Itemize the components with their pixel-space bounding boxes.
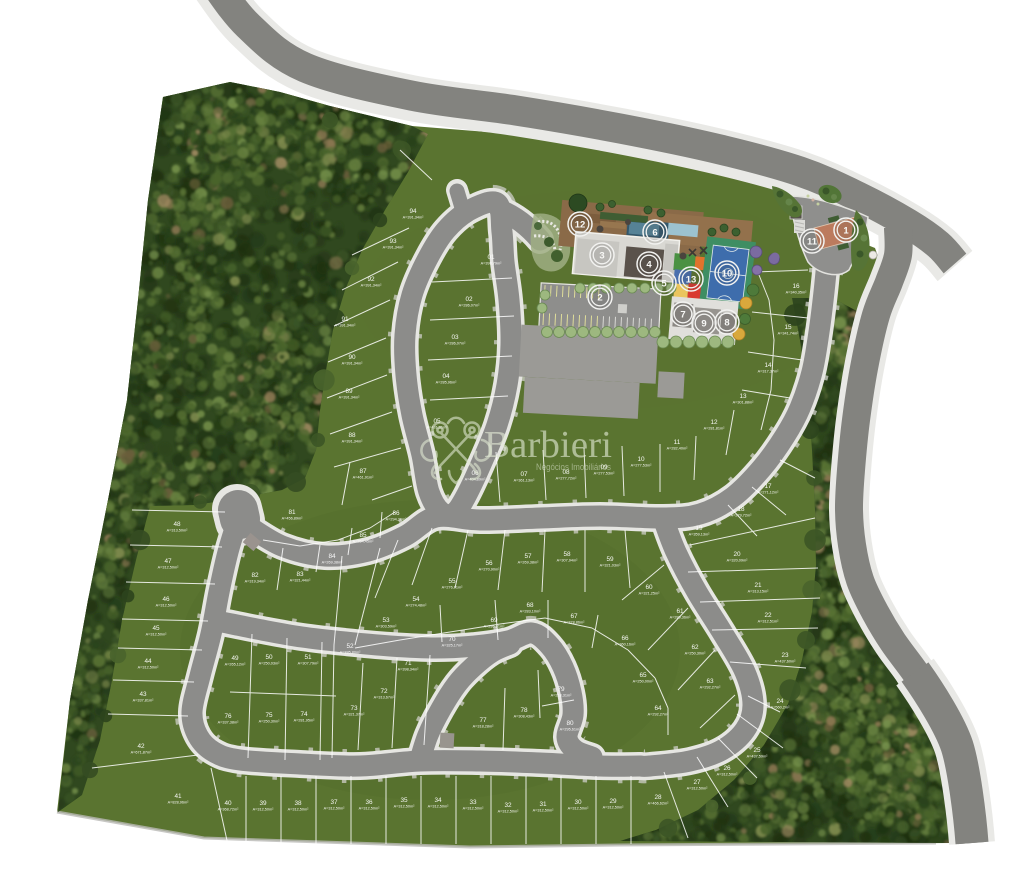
svg-text:2: 2 — [597, 292, 602, 303]
svg-text:62: 62 — [691, 644, 699, 651]
svg-text:94: 94 — [409, 208, 417, 215]
svg-text:90: 90 — [348, 354, 356, 361]
svg-text:86: 86 — [392, 510, 400, 517]
svg-text:18: 18 — [737, 506, 745, 513]
svg-text:A=312,51m²: A=312,51m² — [758, 619, 780, 623]
svg-text:A=312,50m²: A=312,50m² — [288, 807, 310, 811]
svg-text:A=335,80m²: A=335,80m² — [340, 650, 362, 654]
svg-text:77: 77 — [479, 717, 487, 724]
svg-text:74: 74 — [300, 711, 308, 718]
svg-text:20: 20 — [733, 551, 741, 558]
svg-text:A=361,13m²: A=361,13m² — [514, 478, 536, 482]
svg-text:A=286,07m²: A=286,07m² — [445, 341, 467, 345]
svg-text:A=391,34m²: A=391,34m² — [342, 361, 364, 365]
svg-text:88: 88 — [348, 432, 356, 439]
svg-text:87: 87 — [359, 468, 367, 475]
svg-text:A=313,50m²: A=313,50m² — [167, 528, 189, 532]
svg-text:33: 33 — [469, 799, 477, 806]
svg-text:69: 69 — [490, 617, 498, 624]
svg-text:81: 81 — [288, 509, 296, 516]
svg-text:19: 19 — [695, 525, 703, 532]
svg-text:A=398,34m²: A=398,34m² — [398, 667, 420, 671]
svg-text:A=312,50m²: A=312,50m² — [138, 665, 160, 669]
svg-text:13: 13 — [739, 393, 747, 400]
svg-text:7: 7 — [680, 309, 685, 320]
svg-text:40: 40 — [224, 800, 232, 807]
svg-text:24: 24 — [776, 698, 784, 705]
svg-text:82: 82 — [251, 572, 259, 579]
svg-text:43: 43 — [139, 691, 147, 698]
svg-text:29: 29 — [609, 798, 617, 805]
svg-text:A=312,50m²: A=312,50m² — [158, 565, 180, 569]
svg-text:A=391,34m²: A=391,34m² — [383, 245, 405, 249]
svg-text:A=828,96m²: A=828,96m² — [168, 800, 190, 804]
svg-text:65: 65 — [639, 672, 647, 679]
svg-text:A=312,50m²: A=312,50m² — [359, 806, 381, 810]
svg-text:91: 91 — [341, 316, 349, 323]
svg-text:72: 72 — [380, 688, 388, 695]
svg-text:A=254,45m²: A=254,45m² — [353, 539, 375, 543]
svg-text:57: 57 — [524, 553, 532, 560]
svg-text:A=250,30m²: A=250,30m² — [259, 719, 281, 723]
svg-text:03: 03 — [451, 334, 459, 341]
svg-text:A=312,50m²: A=312,50m² — [687, 786, 709, 790]
svg-text:A=312,50m²: A=312,50m² — [498, 809, 520, 813]
svg-text:58: 58 — [563, 551, 571, 558]
svg-text:A=312,50m²: A=312,50m² — [717, 772, 739, 776]
svg-text:A=271,12m²: A=271,12m² — [758, 490, 780, 494]
svg-text:85: 85 — [359, 532, 367, 539]
svg-text:A=456,89m²: A=456,89m² — [282, 516, 304, 520]
svg-text:A=391,34m²: A=391,34m² — [339, 395, 361, 399]
svg-text:34: 34 — [434, 797, 442, 804]
svg-text:A=286,31m²: A=286,31m² — [484, 624, 506, 628]
svg-text:A=295,61m²: A=295,61m² — [560, 727, 582, 731]
svg-text:93: 93 — [389, 238, 397, 245]
svg-text:A=671,87m²: A=671,87m² — [131, 750, 153, 754]
svg-text:07: 07 — [520, 471, 528, 478]
svg-text:70: 70 — [448, 636, 456, 643]
svg-text:A=378,86m²: A=378,86m² — [564, 620, 586, 624]
svg-text:55: 55 — [448, 578, 456, 585]
svg-text:A=437,59m²: A=437,59m² — [747, 754, 769, 758]
svg-text:A=269,38m²: A=269,38m² — [322, 560, 344, 564]
svg-text:A=285,96m²: A=285,96m² — [436, 380, 458, 384]
svg-text:1: 1 — [843, 225, 849, 236]
svg-text:66: 66 — [621, 635, 629, 642]
svg-text:04: 04 — [442, 373, 450, 380]
svg-text:01: 01 — [487, 254, 495, 261]
svg-text:A=321,25m²: A=321,25m² — [639, 591, 661, 595]
svg-text:A=307,94m²: A=307,94m² — [557, 558, 579, 562]
svg-text:36: 36 — [365, 799, 373, 806]
svg-text:31: 31 — [539, 801, 547, 808]
svg-text:6: 6 — [652, 227, 657, 238]
svg-text:A=320,09m²: A=320,09m² — [727, 558, 749, 562]
svg-text:A=368,72m²: A=368,72m² — [218, 807, 240, 811]
svg-text:16: 16 — [792, 283, 800, 290]
svg-text:A=360,16m²: A=360,16m² — [615, 642, 637, 646]
svg-text:A=321,03m²: A=321,03m² — [600, 563, 622, 567]
svg-text:A=307,79m²: A=307,79m² — [298, 661, 320, 665]
svg-text:38: 38 — [294, 800, 302, 807]
svg-text:84: 84 — [328, 553, 336, 560]
svg-text:A=312,50m²: A=312,50m² — [146, 632, 168, 636]
svg-text:25: 25 — [753, 747, 761, 754]
svg-text:75: 75 — [265, 712, 273, 719]
svg-text:89: 89 — [345, 388, 353, 395]
svg-text:56: 56 — [485, 560, 493, 567]
svg-text:92: 92 — [367, 276, 375, 283]
svg-text:A=312,50m²: A=312,50m² — [324, 806, 346, 810]
svg-text:A=312,50m²: A=312,50m² — [603, 805, 625, 809]
svg-text:A=466,62m²: A=466,62m² — [648, 801, 670, 805]
svg-text:A=318,28m²: A=318,28m² — [473, 724, 495, 728]
svg-text:79: 79 — [557, 686, 565, 693]
svg-text:51: 51 — [304, 654, 312, 661]
svg-text:53: 53 — [382, 617, 390, 624]
svg-text:27: 27 — [693, 779, 701, 786]
svg-text:A=337,38m²: A=337,38m² — [218, 720, 240, 724]
svg-text:A=265,12m²: A=265,12m² — [225, 662, 247, 666]
svg-text:30: 30 — [574, 799, 582, 806]
svg-text:A=292,27m²: A=292,27m² — [700, 685, 722, 689]
svg-text:45: 45 — [152, 625, 160, 632]
svg-text:48: 48 — [173, 521, 181, 528]
svg-text:A=281,95m²: A=281,95m² — [294, 718, 316, 722]
svg-text:A=218,31m²: A=218,31m² — [551, 693, 573, 697]
svg-text:A=294,36m²: A=294,36m² — [386, 517, 408, 521]
svg-text:A=312,50m²: A=312,50m² — [394, 804, 416, 808]
svg-text:A=317,37m²: A=317,37m² — [758, 369, 780, 373]
svg-text:71: 71 — [404, 660, 412, 667]
svg-text:Barbieri: Barbieri — [484, 424, 612, 466]
svg-text:41: 41 — [174, 793, 182, 800]
svg-text:A=313,67m²: A=313,67m² — [374, 695, 396, 699]
svg-text:Negócios Imobiliários: Negócios Imobiliários — [536, 462, 611, 473]
svg-text:10: 10 — [637, 456, 645, 463]
svg-text:17: 17 — [764, 483, 772, 490]
svg-text:12: 12 — [575, 219, 586, 230]
svg-text:A=286,07m²: A=286,07m² — [459, 303, 481, 307]
svg-text:42: 42 — [137, 743, 145, 750]
svg-text:47: 47 — [164, 558, 172, 565]
svg-text:A=359,13m²: A=359,13m² — [689, 532, 711, 536]
svg-text:60: 60 — [645, 584, 653, 591]
svg-text:5: 5 — [661, 278, 667, 289]
svg-text:A=340,35m²: A=340,35m² — [786, 290, 808, 294]
svg-text:A=279,72m²: A=279,72m² — [731, 513, 753, 517]
svg-text:A=461,91m²: A=461,91m² — [353, 475, 375, 479]
svg-text:A=312,50m²: A=312,50m² — [568, 806, 590, 810]
svg-text:61: 61 — [676, 608, 684, 615]
svg-text:A=250,00m²: A=250,00m² — [633, 679, 655, 683]
svg-text:9: 9 — [701, 318, 706, 329]
svg-text:A=312,50m²: A=312,50m² — [253, 807, 275, 811]
svg-text:12: 12 — [710, 419, 718, 426]
svg-text:14: 14 — [764, 362, 772, 369]
svg-text:28: 28 — [654, 794, 662, 801]
svg-text:A=319,34m²: A=319,34m² — [245, 579, 267, 583]
svg-text:11: 11 — [807, 236, 818, 247]
svg-text:37: 37 — [330, 799, 338, 806]
svg-text:3: 3 — [599, 250, 604, 261]
svg-text:A=341,74m²: A=341,74m² — [778, 331, 800, 335]
svg-text:11: 11 — [674, 439, 681, 446]
svg-text:A=337,81m²: A=337,81m² — [133, 698, 155, 702]
svg-text:32: 32 — [504, 802, 512, 809]
svg-text:A=560,2m²: A=560,2m² — [771, 705, 790, 709]
svg-text:A=250,30m²: A=250,30m² — [685, 651, 707, 655]
svg-text:A=437,60m²: A=437,60m² — [775, 659, 797, 663]
svg-text:A=281,81m²: A=281,81m² — [704, 426, 726, 430]
svg-text:A=391,34m²: A=391,34m² — [335, 323, 357, 327]
svg-text:8: 8 — [724, 317, 729, 328]
svg-text:A=391,34m²: A=391,34m² — [342, 439, 364, 443]
svg-text:A=391,34m²: A=391,34m² — [403, 215, 425, 219]
svg-text:A=325,17m²: A=325,17m² — [442, 643, 464, 647]
svg-text:23: 23 — [781, 652, 789, 659]
svg-text:A=312,50m²: A=312,50m² — [156, 603, 178, 607]
svg-text:35: 35 — [400, 797, 408, 804]
svg-text:A=391,34m²: A=391,34m² — [361, 283, 383, 287]
svg-text:4: 4 — [646, 259, 652, 270]
svg-text:80: 80 — [566, 720, 574, 727]
svg-text:A=289,36m²: A=289,36m² — [670, 615, 692, 619]
svg-text:15: 15 — [784, 324, 792, 331]
svg-text:A=313,15m²: A=313,15m² — [748, 589, 770, 593]
svg-text:A=270,90m²: A=270,90m² — [479, 567, 501, 571]
svg-text:39: 39 — [259, 800, 267, 807]
svg-text:67: 67 — [570, 613, 578, 620]
svg-text:78: 78 — [520, 707, 528, 714]
svg-text:46: 46 — [162, 596, 170, 603]
svg-text:A=269,38m²: A=269,38m² — [518, 560, 540, 564]
svg-text:73: 73 — [350, 705, 358, 712]
svg-text:A=250,03m²: A=250,03m² — [259, 661, 281, 665]
svg-text:A=312,50m²: A=312,50m² — [533, 808, 555, 812]
svg-text:A=321,37m²: A=321,37m² — [344, 712, 366, 716]
svg-text:49: 49 — [231, 655, 239, 662]
svg-text:26: 26 — [723, 765, 731, 772]
svg-text:02: 02 — [465, 296, 473, 303]
svg-text:54: 54 — [412, 596, 420, 603]
svg-text:83: 83 — [296, 571, 304, 578]
svg-text:A=321,44m²: A=321,44m² — [290, 578, 312, 582]
svg-text:A=276,91m²: A=276,91m² — [442, 585, 464, 589]
svg-text:A=301,88m²: A=301,88m² — [733, 400, 755, 404]
svg-text:A=282,40m²: A=282,40m² — [667, 446, 689, 450]
svg-text:22: 22 — [764, 612, 772, 619]
svg-text:52: 52 — [346, 643, 354, 650]
svg-text:76: 76 — [224, 713, 232, 720]
svg-text:A=308,43m²: A=308,43m² — [514, 714, 536, 718]
svg-text:A=277,53m²: A=277,53m² — [631, 463, 653, 467]
svg-text:A=312,50m²: A=312,50m² — [428, 804, 450, 808]
svg-text:A=292,27m²: A=292,27m² — [648, 712, 670, 716]
svg-text:13: 13 — [686, 274, 697, 285]
svg-text:59: 59 — [606, 556, 614, 563]
svg-text:A=274,48m²: A=274,48m² — [406, 603, 428, 607]
svg-text:50: 50 — [265, 654, 273, 661]
svg-text:63: 63 — [706, 678, 714, 685]
svg-text:68: 68 — [526, 602, 534, 609]
svg-text:A=303,59m²: A=303,59m² — [376, 624, 398, 628]
svg-text:A=398,79m²: A=398,79m² — [481, 261, 503, 265]
svg-text:A=283,10m²: A=283,10m² — [520, 609, 542, 613]
svg-text:21: 21 — [754, 582, 762, 589]
svg-text:A=312,50m²: A=312,50m² — [463, 806, 485, 810]
svg-text:44: 44 — [144, 658, 152, 665]
svg-text:A=277,72m²: A=277,72m² — [556, 476, 578, 480]
svg-text:64: 64 — [654, 705, 662, 712]
svg-text:10: 10 — [722, 268, 733, 279]
